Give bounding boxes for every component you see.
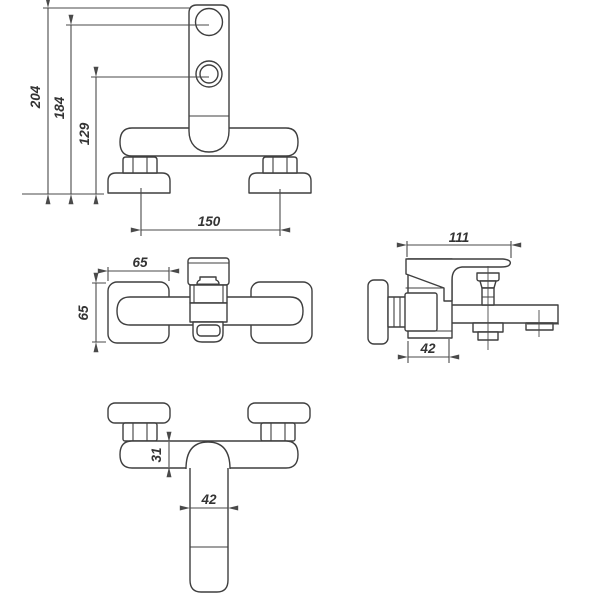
bottom-left-escutcheon xyxy=(108,403,170,423)
front-right-nut xyxy=(263,157,297,173)
dim-label-31: 31 xyxy=(149,447,164,462)
plan-body-block xyxy=(190,303,227,322)
drawing-page: 204 184 129 150 65 65 xyxy=(0,0,600,600)
dim-label-111: 111 xyxy=(449,230,470,245)
side-view: 111 42 xyxy=(368,230,559,363)
front-extension-lines xyxy=(22,8,209,194)
side-spout-block xyxy=(445,305,558,323)
side-union-flange xyxy=(405,293,437,331)
plan-cartridge xyxy=(190,285,227,303)
side-nut xyxy=(388,297,407,327)
dim-label-65-width: 65 xyxy=(132,255,148,270)
bottom-right-escutcheon xyxy=(248,403,310,423)
plan-view: 65 65 xyxy=(76,255,312,343)
dim-label-204: 204 xyxy=(28,85,43,109)
technical-drawing: 204 184 129 150 65 65 xyxy=(0,0,600,600)
bottom-view: 31 42 xyxy=(108,403,310,592)
bottom-left-nut xyxy=(123,423,157,441)
bottom-spout-tube xyxy=(190,468,228,592)
dim-label-150: 150 xyxy=(198,214,221,229)
dim-label-42-spout: 42 xyxy=(200,492,217,507)
dim-label-129: 129 xyxy=(77,122,92,145)
front-view: 204 184 129 150 xyxy=(22,5,311,236)
front-top-port xyxy=(196,9,223,36)
bottom-right-nut xyxy=(261,423,295,441)
front-left-nut xyxy=(123,157,157,173)
dim-label-42-side: 42 xyxy=(419,341,436,356)
dim-label-65-depth: 65 xyxy=(76,305,91,321)
dim-label-184: 184 xyxy=(52,96,67,119)
plan-depth-extensions xyxy=(92,283,106,342)
front-left-escutcheon xyxy=(108,173,170,193)
side-escutcheon xyxy=(368,280,388,344)
